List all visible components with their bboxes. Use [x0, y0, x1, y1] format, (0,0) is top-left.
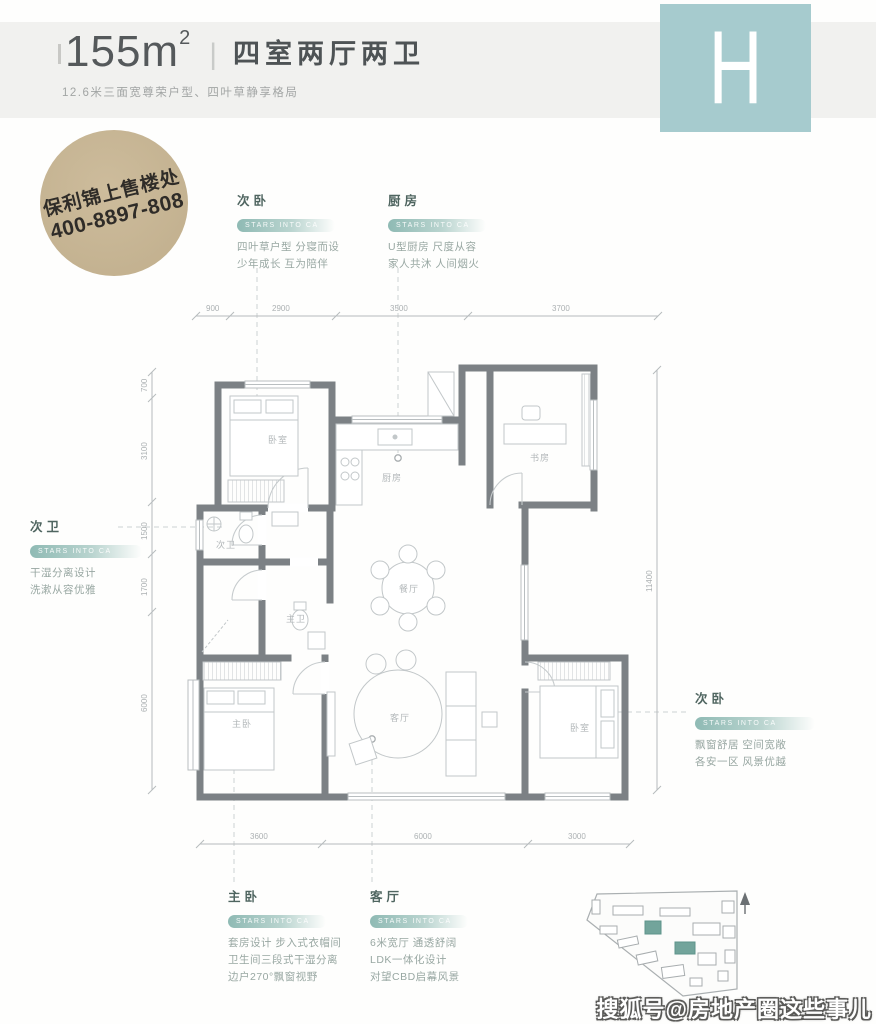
room-label-dining: 餐厅: [399, 583, 419, 594]
room-label-kitchen: 厨房: [382, 472, 402, 483]
annotation-line: 边户270°飘窗视野: [228, 969, 341, 986]
annotation-line: 飘窗舒居 空间宽敞: [695, 737, 815, 754]
annotation-bedroom-right: 次卧 STARS INTO CA 飘窗舒居 空间宽敞 各安一区 风景优越: [695, 688, 815, 771]
room-label-master: 主卧: [232, 718, 252, 729]
dim-top-1: 900: [206, 304, 220, 313]
annotation-pill: STARS INTO CA: [30, 545, 142, 558]
dim-bottom-1: 3600: [250, 832, 268, 841]
dim-top-4: 3700: [552, 304, 570, 313]
annotation-line: 少年成长 互为陪伴: [237, 256, 339, 273]
dim-top-3: 3500: [390, 304, 408, 313]
annotation-living: 客厅 STARS INTO CA 6米宽厅 通透舒阔 LDK一体化设计 对望CB…: [370, 886, 468, 986]
annotation-line: 对望CBD启幕风景: [370, 969, 468, 986]
annotation-line: LDK一体化设计: [370, 952, 468, 969]
annotation-line: 洗漱从容优雅: [30, 582, 142, 599]
room-label-living: 客厅: [390, 712, 410, 723]
annotation-pill: STARS INTO CA: [388, 219, 486, 232]
annotation-pill: STARS INTO CA: [695, 717, 815, 730]
annotation-line: 卫生间三段式干湿分离: [228, 952, 341, 969]
annotation-line: 家人共沐 人间烟火: [388, 256, 486, 273]
site-plan: [587, 891, 750, 996]
annotation-line: 四叶草户型 分寝而设: [237, 239, 339, 256]
room-label-bedroom1: 卧室: [268, 434, 288, 445]
annotation-pill: STARS INTO CA: [237, 219, 335, 232]
annotation-pill: STARS INTO CA: [228, 915, 326, 928]
annotation-bath: 次卫 STARS INTO CA 干湿分离设计 洗漱从容优雅: [30, 516, 142, 599]
dim-bottom-3: 3000: [568, 832, 586, 841]
annotation-line: 干湿分离设计: [30, 565, 142, 582]
annotation-master: 主卧 STARS INTO CA 套房设计 步入式衣帽间 卫生间三段式干湿分离 …: [228, 886, 341, 986]
dim-top-2: 2900: [272, 304, 290, 313]
annotation-pill: STARS INTO CA: [370, 915, 468, 928]
room-label-bedroom3: 卧室: [570, 722, 590, 733]
annotation-kitchen: 厨房 STARS INTO CA U型厨房 尺度从容 家人共沐 人间烟火: [388, 190, 486, 273]
room-label-bath1: 主卫: [286, 613, 306, 624]
floor-plan-drawing: 卧室 厨房 书房 次卫 主卫 餐厅 主卧 客厅 卧室 90: [0, 0, 876, 1024]
annotation-title: 次卫: [30, 516, 142, 535]
north-arrow-icon: [740, 892, 750, 914]
annotation-line: U型厨房 尺度从容: [388, 239, 486, 256]
annotation-title: 主卧: [228, 886, 341, 905]
site-highlight-building-1: [645, 921, 661, 934]
annotation-title: 次卧: [695, 688, 815, 707]
annotation-line: 6米宽厅 通透舒阔: [370, 935, 468, 952]
room-label-study: 书房: [530, 452, 550, 463]
annotation-title: 客厅: [370, 886, 468, 905]
floorplan-poster: 155m2 | 四室两厅两卫 12.6米三面宽尊荣户型、四叶草静享格局 H 保利…: [0, 0, 876, 1024]
annotation-title: 厨房: [388, 190, 486, 209]
room-label-bath2: 次卫: [216, 539, 236, 550]
dim-left-1: 700: [140, 378, 149, 392]
dim-left-5: 6000: [140, 694, 149, 712]
dim-left-2: 3100: [140, 442, 149, 460]
dim-bottom-2: 6000: [414, 832, 432, 841]
annotation-bedroom-top: 次卧 STARS INTO CA 四叶草户型 分寝而设 少年成长 互为陪伴: [237, 190, 339, 273]
watermark: 搜狐号@房地产圈这些事儿: [597, 992, 872, 1024]
site-highlight-building-2: [675, 942, 695, 954]
annotation-title: 次卧: [237, 190, 339, 209]
dim-right-1: 11400: [645, 570, 654, 592]
annotation-line: 各安一区 风景优越: [695, 754, 815, 771]
annotation-line: 套房设计 步入式衣帽间: [228, 935, 341, 952]
